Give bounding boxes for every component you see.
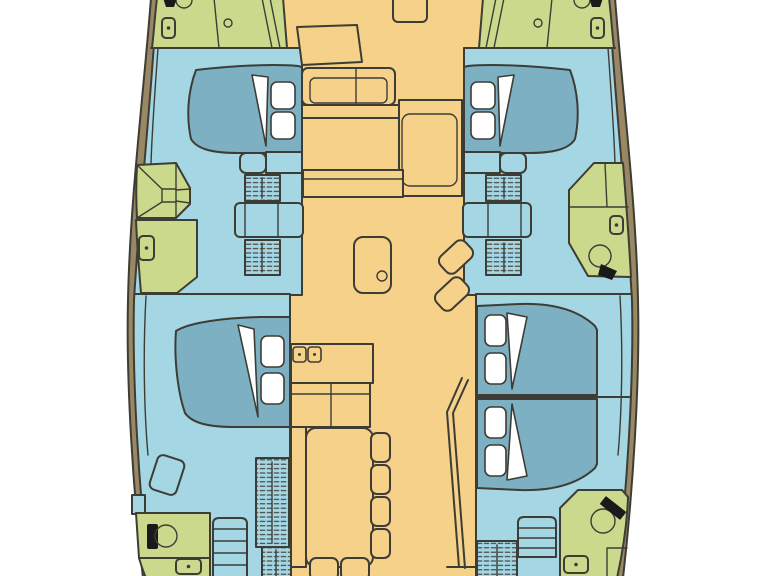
floor-plan-canvas xyxy=(0,0,768,576)
dining-chair xyxy=(371,465,390,494)
port-aft-berth xyxy=(175,317,290,427)
aft-hatch-dot xyxy=(574,563,578,567)
bench-side-strip xyxy=(291,427,306,567)
berth-step xyxy=(240,153,266,173)
dining-chair xyxy=(371,497,390,526)
head-hatch-dot xyxy=(615,223,619,227)
berth-step xyxy=(266,152,302,173)
dining-chair xyxy=(371,433,390,462)
aft-hatch-dot xyxy=(187,565,191,569)
shelving-unit xyxy=(518,517,556,557)
dining-chair xyxy=(371,529,390,558)
pillow xyxy=(485,315,506,346)
galley-counter-mid xyxy=(303,170,403,197)
pillow xyxy=(261,336,284,367)
dining-table xyxy=(306,428,373,567)
pillow xyxy=(271,82,295,109)
toilet-tank xyxy=(147,524,158,549)
burner-dot xyxy=(298,353,301,356)
pillow xyxy=(485,445,506,476)
galley-counter-strip xyxy=(302,105,403,118)
pillow xyxy=(271,112,295,139)
pillow xyxy=(485,407,506,438)
sink-table xyxy=(354,237,391,293)
head-hatch-dot xyxy=(145,246,149,250)
galley-counter-forward xyxy=(302,68,395,105)
burner-dot xyxy=(313,353,316,356)
dining-chair xyxy=(310,558,338,576)
foredeck-hatch xyxy=(393,0,427,22)
bow-hatch-dot xyxy=(167,26,171,30)
pillow xyxy=(485,353,506,384)
cockpit-bench xyxy=(297,25,362,65)
hull-locker xyxy=(132,495,145,514)
shelving-unit xyxy=(213,518,247,576)
dining-chair xyxy=(341,558,369,576)
pillow xyxy=(261,373,284,404)
